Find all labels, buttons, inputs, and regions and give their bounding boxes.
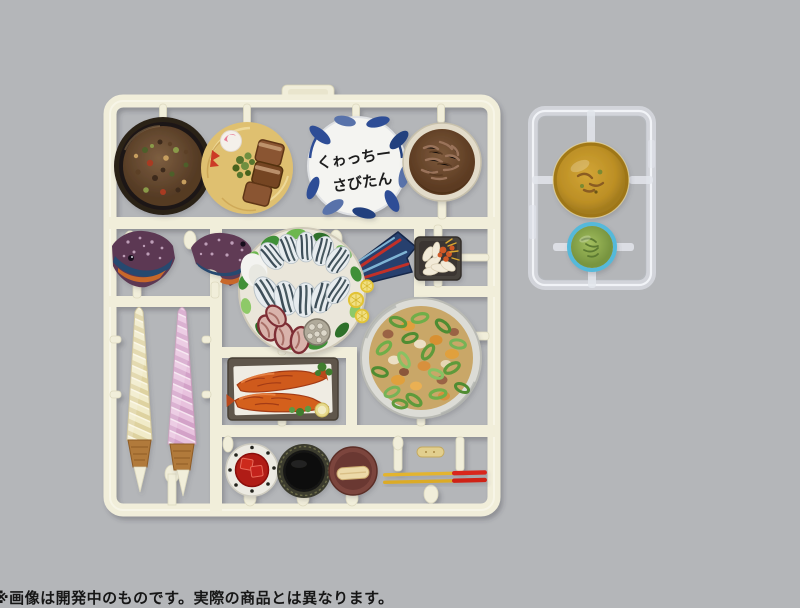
amber-soup-disc (553, 142, 629, 218)
photo-canvas: くゎっちー さびたん (0, 0, 800, 600)
disclaimer-text: ※画像は開発中のものです。実際の商品とは異なります。 (0, 587, 394, 608)
black-lacquer-cup (277, 444, 331, 498)
fried-fish-tray (226, 358, 338, 420)
mixed-rice-bowl (114, 117, 212, 215)
okinawa-soba-plate (201, 122, 293, 214)
small-stick-part (417, 447, 444, 457)
goya-champuru-plate (361, 298, 481, 418)
stewed-meat-bowl (403, 123, 481, 201)
product-photo: くゎっちー さびたん (0, 0, 800, 600)
dessert-dish (329, 447, 377, 495)
island-scallion-dish (415, 237, 461, 280)
tofuyo-dish (226, 444, 278, 496)
seaweed-soup-disc (569, 224, 615, 270)
